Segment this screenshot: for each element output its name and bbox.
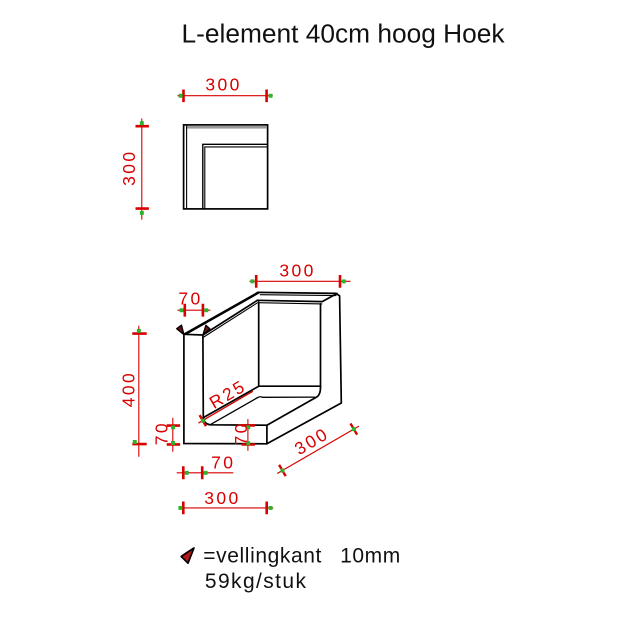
svg-text:300: 300 (204, 488, 240, 508)
svg-text:70: 70 (151, 421, 171, 445)
svg-text:70: 70 (211, 452, 235, 472)
svg-text:400: 400 (118, 371, 138, 407)
svg-text:300: 300 (279, 261, 315, 281)
svg-text:=vellingkant: =vellingkant (203, 544, 322, 567)
svg-text:L-element 40cm hoog Hoek: L-element 40cm hoog Hoek (182, 18, 506, 48)
svg-text:300: 300 (119, 149, 139, 185)
svg-text:10mm: 10mm (340, 544, 401, 567)
svg-text:70: 70 (231, 421, 251, 445)
svg-text:70: 70 (178, 289, 202, 309)
svg-text:300: 300 (205, 74, 241, 94)
svg-text:59kg/stuk: 59kg/stuk (205, 570, 308, 593)
